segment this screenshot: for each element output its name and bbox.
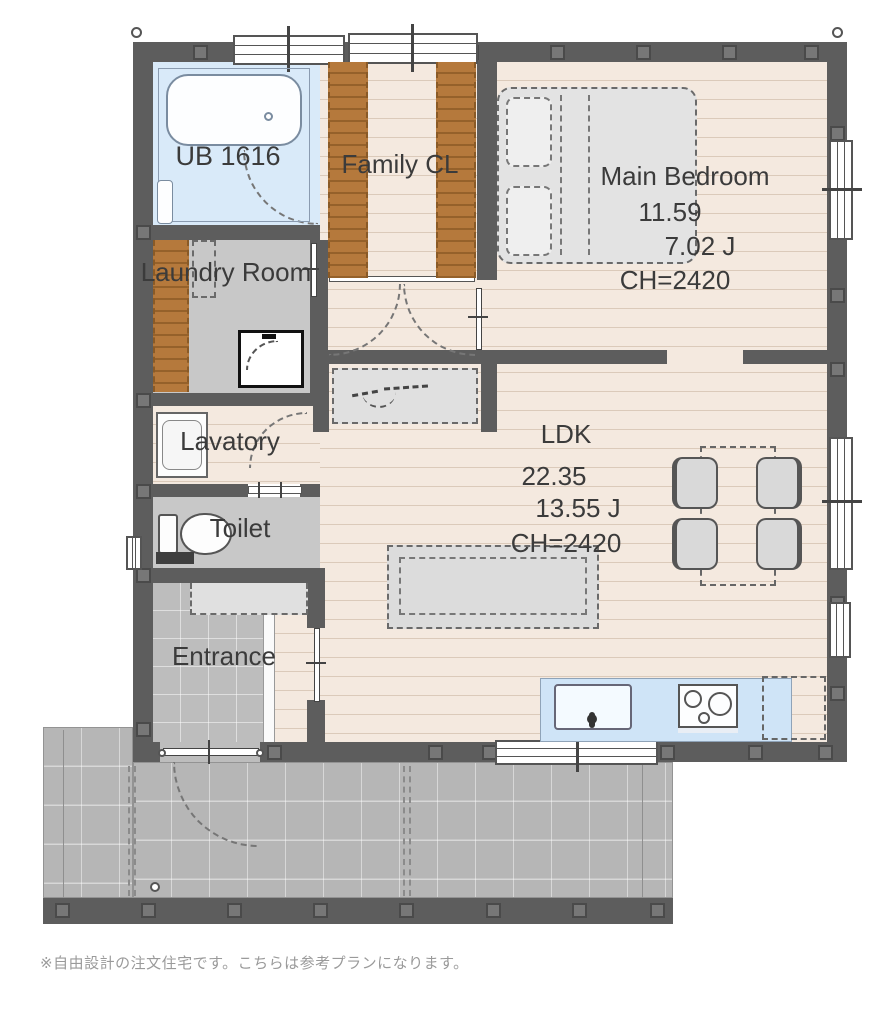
dining-chair [756,457,802,509]
deck-left [43,727,133,898]
deck-seam-line [63,730,64,898]
wall-post [550,45,565,60]
deck-post [486,903,501,918]
deck-post [572,903,587,918]
deck-dashed-line [403,766,405,896]
dining-chair [756,518,802,570]
wall-hall-east-lower [307,700,325,742]
deck-dashed-line [134,766,136,896]
deck-drain-ring [150,882,160,892]
wall-post [636,45,651,60]
refrigerator-space [762,676,826,740]
door-tick [208,740,210,764]
toilet-tank [158,514,178,554]
room-label-bedroom: Main Bedroom [560,160,810,192]
wall-post [748,745,763,760]
wall-bath-south [153,225,320,240]
sofa-seat [399,557,587,615]
stove-burner [698,712,710,724]
wall-post [804,45,819,60]
door-hinge-ring [158,749,166,757]
bedroom-area-m2: 11.59 [560,196,780,228]
deck-dashed-line [128,766,130,896]
wall-lavatory-toilet-right [300,484,320,497]
door-tick [306,662,326,664]
bathtub-drain [264,112,273,121]
wall-post [830,362,845,377]
room-label-family-closet: Family CL [325,148,475,180]
deck-post [227,903,242,918]
wall-post [830,686,845,701]
window-tick [822,500,862,503]
room-label-ldk: LDK [446,418,686,450]
ldk-area-jo: 13.55 J [458,492,698,524]
bedroom-ceiling-height: CH=2420 [560,264,790,296]
deck-seam-line [642,764,643,898]
wall-lavatory-toilet-left [153,484,248,497]
deck-post [55,903,70,918]
window-tick [411,24,414,72]
deck-post [650,903,665,918]
door-tick [280,482,282,498]
room-label-toilet: Toilet [180,512,300,544]
window-tick [287,26,290,72]
washing-machine-panel [262,334,276,339]
wall-post [136,393,151,408]
wall-closet-east [477,62,497,280]
wall-post [136,484,151,499]
toilet-door-sill [248,486,302,494]
bathtub [166,74,302,146]
shoe-cabinet [190,583,308,615]
window-toilet-left [126,536,142,570]
wall-post [193,45,208,60]
wall-post [818,745,833,760]
wall-tv-niche-left [313,364,329,432]
entrance-step [263,615,275,742]
bed-pillow [506,97,552,167]
deck-post [141,903,156,918]
deck-post [399,903,414,918]
room-label-entrance: Entrance [164,640,284,672]
bedroom-area-jo: 7.02 J [560,230,840,262]
corner-anchor-ring [832,27,843,38]
faucet-base [587,714,597,724]
door-tick [258,482,260,498]
window-ldk-right [829,437,853,570]
hall-sliding-door [314,628,320,702]
wall-toilet-entrance [153,568,320,583]
bath-counter [157,180,173,224]
deck-dashed-line [409,766,411,896]
disclaimer-note: ※自由設計の注文住宅です。こちらは参考プランになります。 [40,952,469,973]
stove-burner [708,692,732,716]
door-hinge-ring [256,749,264,757]
toilet-counter [156,552,194,564]
wall-post [136,568,151,583]
deck-post [313,903,328,918]
wall-corridor-ldk [313,350,667,364]
bedroom-sliding-door [476,288,482,350]
wall-post [830,288,845,303]
room-label-bath: UB 1616 [153,140,303,172]
room-label-lavatory: Lavatory [155,425,305,457]
wall-bedroom-ldk-right [743,350,827,364]
wall-hall-east-upper [307,568,325,628]
entrance-door-leaf [163,748,259,756]
window-tick [822,188,862,191]
corner-anchor-ring [131,27,142,38]
stove-burner [684,690,702,708]
wall-post [136,722,151,737]
door-tick [468,316,488,318]
wall-post [830,126,845,141]
wall-laundry-lavatory [153,393,320,406]
wall-post [428,745,443,760]
ldk-ceiling-height: CH=2420 [446,527,686,559]
wall-post [136,225,151,240]
wall-post [267,745,282,760]
window-kitchen-right [829,602,851,658]
wall-post [722,45,737,60]
wall-post [660,745,675,760]
room-label-laundry: Laundry Room [131,256,321,288]
bed-pillow [506,186,552,256]
stove-grill [678,726,738,733]
ldk-area-m2: 22.35 [434,460,674,492]
floor-plan: UB 1616 Family CL Main Bedroom 11.59 7.0… [0,0,891,1024]
